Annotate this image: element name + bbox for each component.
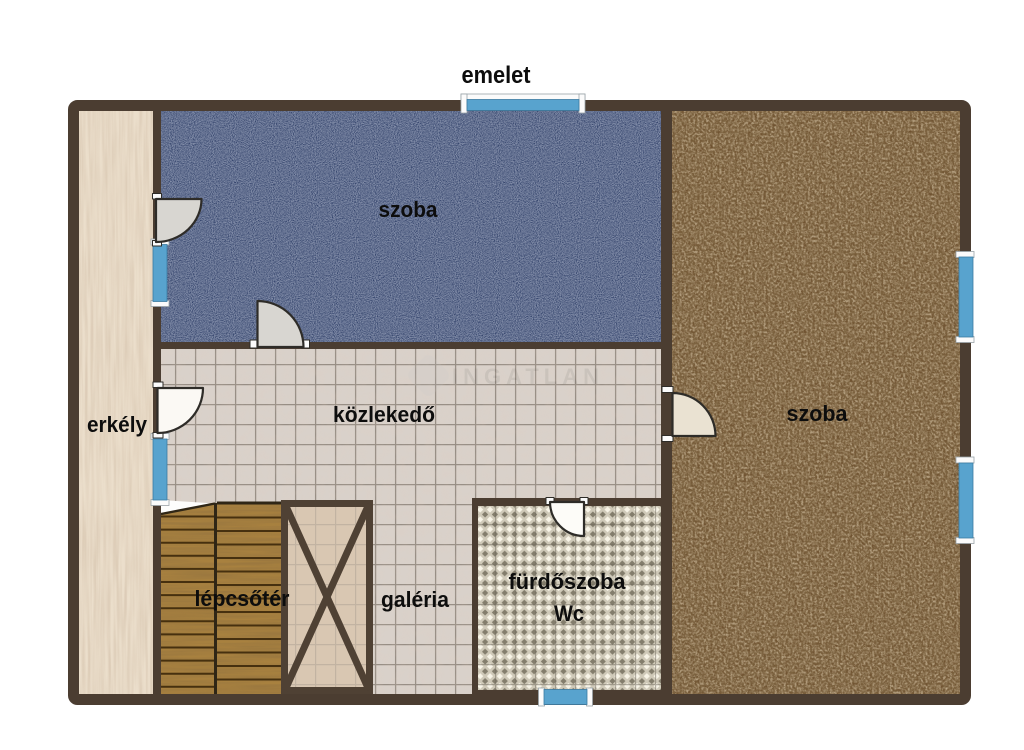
svg-text:galéria: galéria [381, 587, 450, 612]
svg-text:fürdőszoba: fürdőszoba [509, 569, 627, 594]
svg-text:szoba: szoba [379, 197, 439, 222]
svg-text:INGATLAN: INGATLAN [452, 364, 604, 389]
svg-text:emelet: emelet [462, 62, 531, 89]
svg-text:erkély: erkély [87, 412, 148, 437]
svg-text:közlekedő: közlekedő [333, 402, 435, 427]
svg-text:Wc: Wc [554, 601, 584, 626]
svg-text:lépcsőtér: lépcsőtér [195, 586, 290, 611]
svg-text:szoba: szoba [787, 401, 849, 426]
